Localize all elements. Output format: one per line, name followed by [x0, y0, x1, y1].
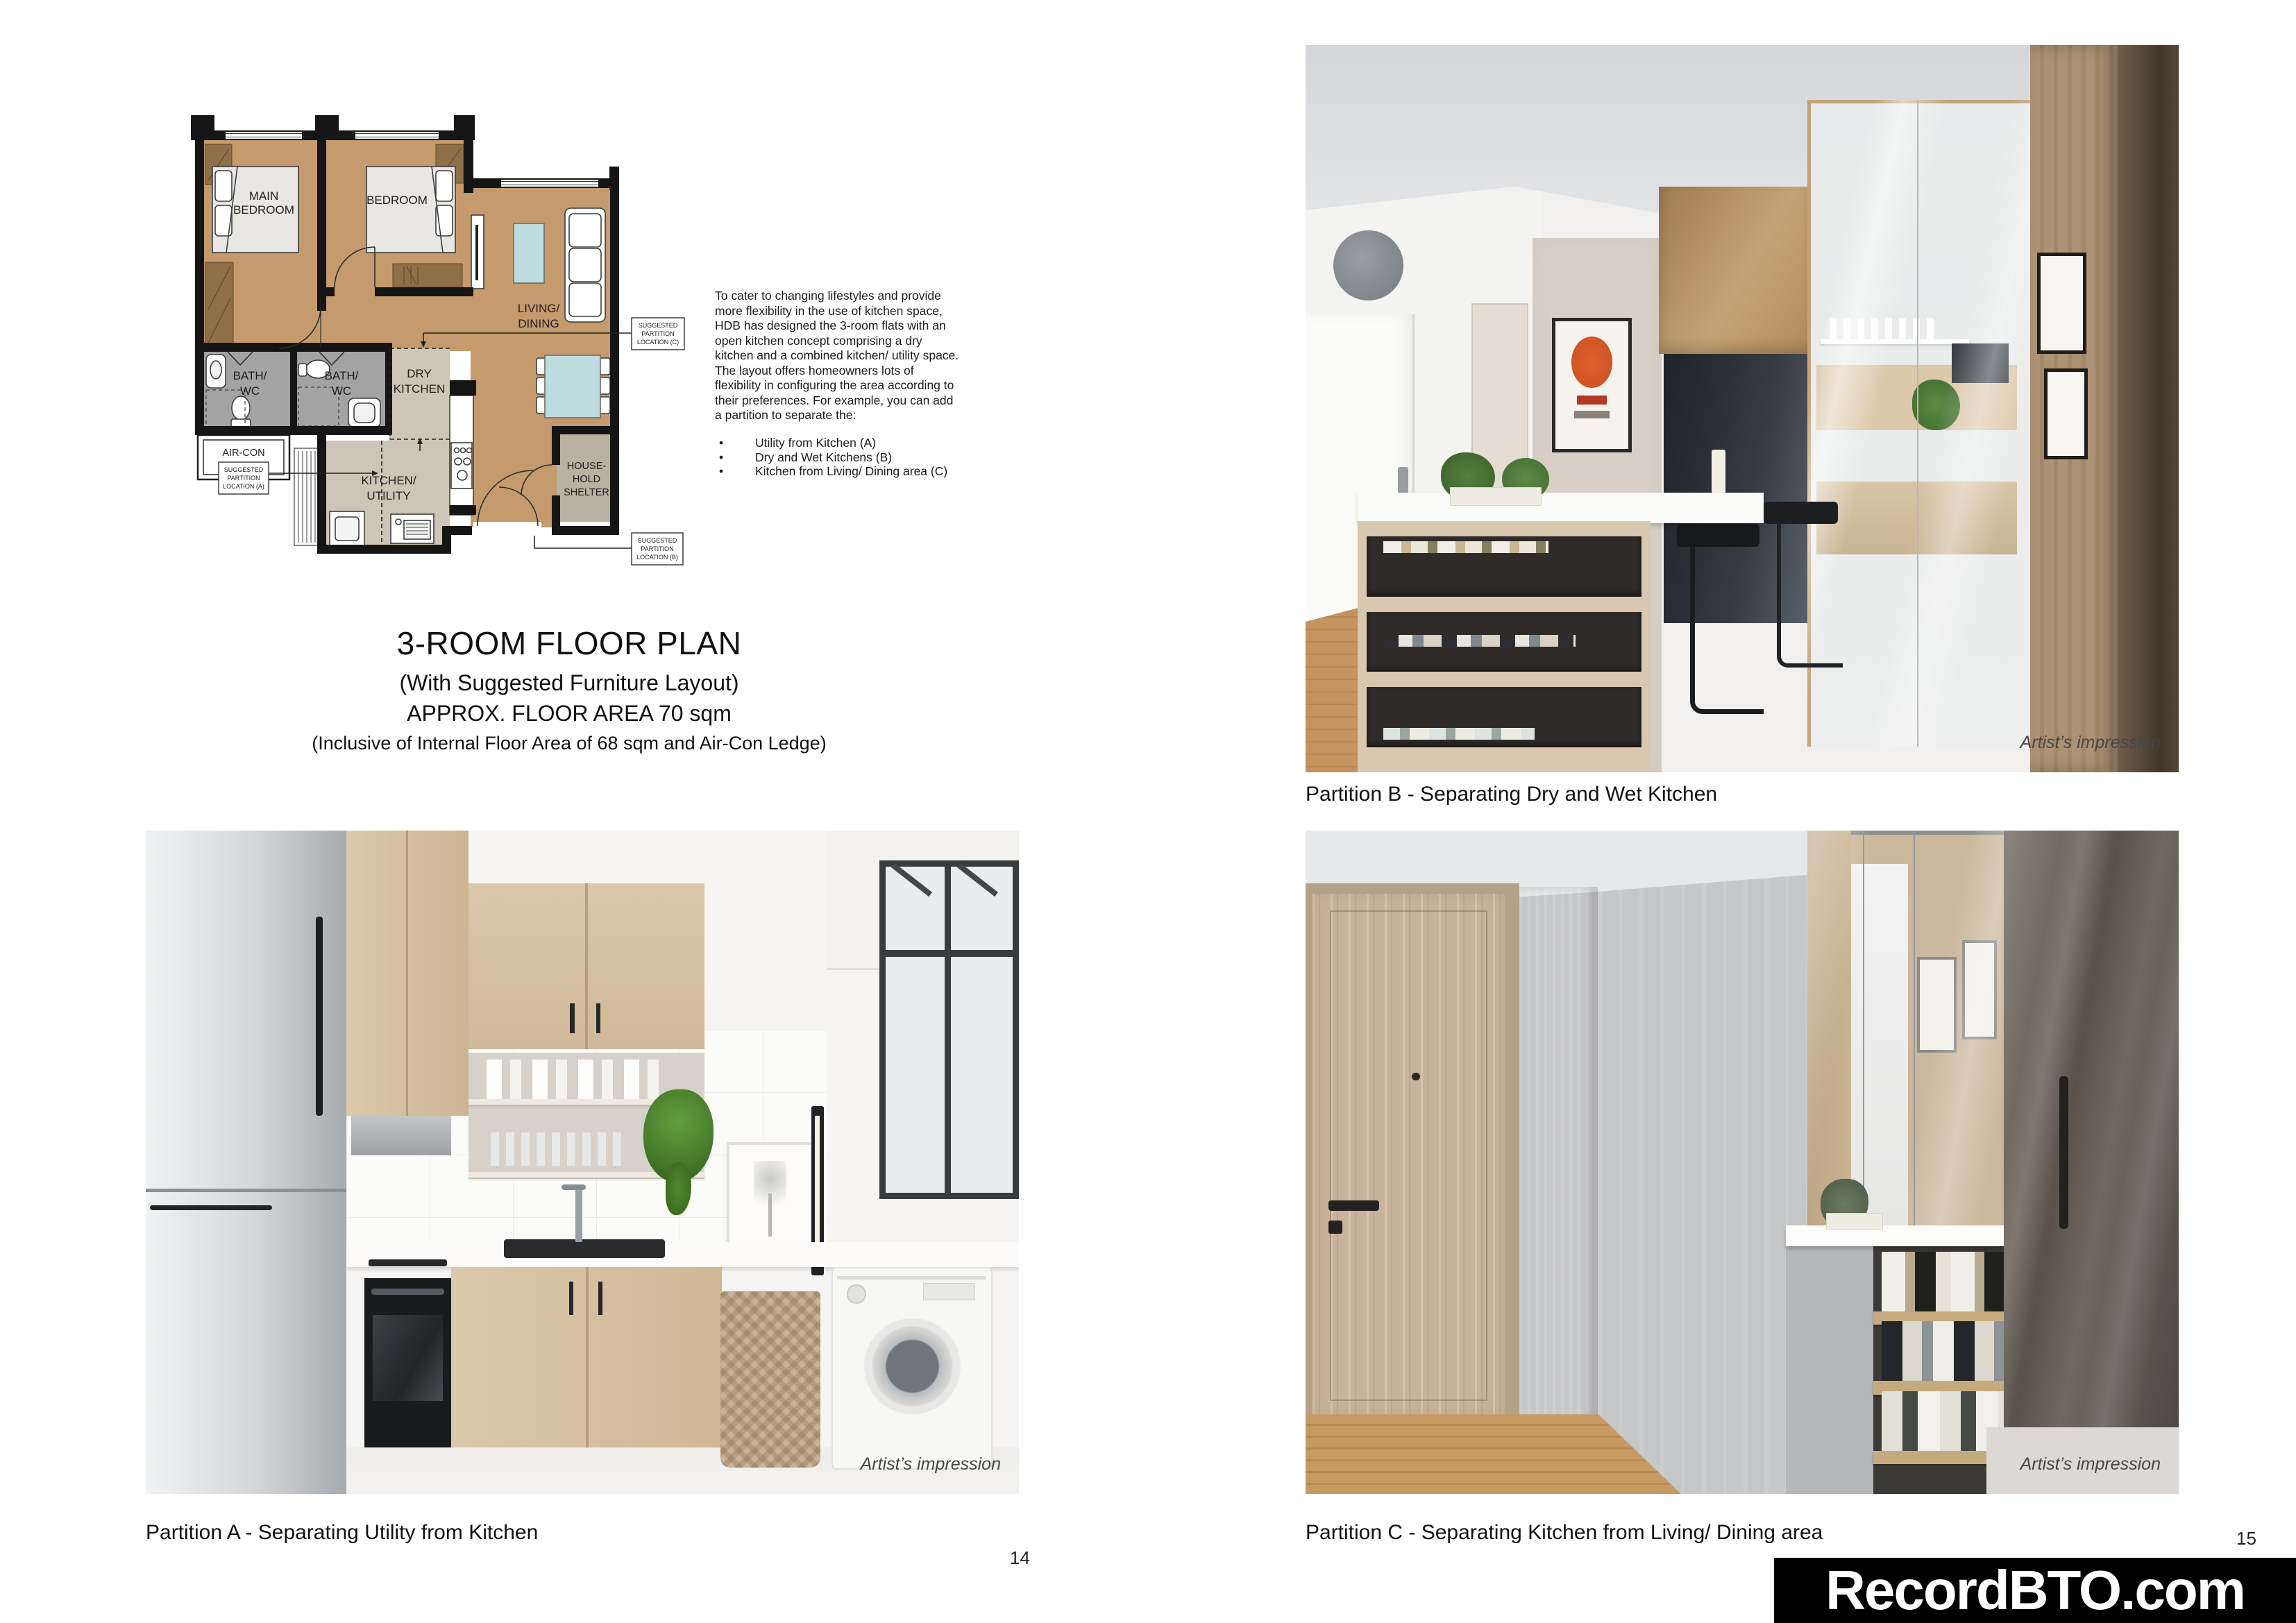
tag-a-l1: SUGGESTED: [224, 466, 264, 473]
cabinet-door-split: [406, 831, 408, 1116]
oven-window: [373, 1315, 443, 1401]
washer-knob: [847, 1284, 866, 1304]
label-bath2-l1: BATH/: [325, 369, 359, 382]
bullet-dry-wet: Dry and Wet Kitchens (B): [715, 450, 979, 465]
magazines: [1882, 1252, 2008, 1311]
overhead-cabinet: [1659, 187, 1812, 354]
magazines: [1882, 1321, 2008, 1381]
lamp-light-strip: [815, 1116, 820, 1261]
art-text-line: [1574, 411, 1610, 418]
kitchen-sink: [504, 1239, 666, 1258]
label-living-l1: LIVING/: [518, 302, 560, 315]
tag-a-l2: PARTITION: [227, 475, 260, 482]
planter-box: [1826, 1213, 1883, 1230]
intro-paragraph: To cater to changing lifestyles and prov…: [715, 289, 962, 423]
cabinet-door-split: [586, 1267, 589, 1466]
shelf-slot: [1367, 536, 1641, 597]
island-countertop: [1358, 493, 1764, 523]
wall-clock: [1333, 230, 1403, 300]
shelf-slot: [1367, 612, 1641, 672]
title-subtitle-1: (With Suggested Furniture Layout): [222, 670, 916, 696]
title-block: 3-ROOM FLOOR PLAN (With Suggested Furnit…: [222, 624, 916, 754]
photo-partition-c: Artist’s impression: [1306, 831, 2179, 1494]
intro-bullet-list: Utility from Kitchen (A) Dry and Wet Kit…: [715, 436, 979, 479]
wall-art-frame: [1552, 318, 1632, 452]
title-subtitle-3: (Inclusive of Internal Floor Area of 68 …: [222, 733, 916, 754]
label-dry-kitchen-l2: KITCHEN: [394, 382, 446, 396]
caption-partition-b: Partition B - Separating Dry and Wet Kit…: [1306, 783, 1717, 806]
cabinet-handle: [596, 1003, 600, 1033]
watermark-text: RecordBTO.com: [1825, 1558, 2245, 1622]
label-shelter-l1: HOUSE-: [567, 461, 607, 472]
books: [1383, 541, 1548, 553]
cabinet-handle: [569, 1282, 573, 1315]
cabinet-handle: [598, 1282, 602, 1315]
bullet-utility: Utility from Kitchen (A): [715, 436, 979, 450]
faucet: [575, 1185, 582, 1241]
watermark-banner: RecordBTO.com: [1774, 1558, 2296, 1623]
grey-wall: [1598, 831, 1807, 1494]
shelf-slot: [1367, 687, 1641, 747]
label-living-l2: DINING: [518, 317, 559, 330]
planter-box: [1450, 487, 1542, 506]
bar-stool: [1764, 502, 1838, 523]
tag-b-l1: SUGGESTED: [638, 537, 677, 544]
refrigerator-handle: [150, 1205, 272, 1210]
window-transom: [879, 950, 1019, 957]
page-number-left: 14: [1010, 1547, 1030, 1569]
art-sun-motif: [1571, 337, 1612, 388]
bar-stool-legs: [1777, 522, 1842, 668]
refrigerator-door-split: [146, 1189, 346, 1192]
island-front-panel: [1786, 1246, 1873, 1495]
label-main-bedroom-l2: BEDROOM: [233, 203, 294, 216]
label-bath1-l2: WC: [240, 384, 260, 398]
cabinet-door-split: [585, 883, 588, 1049]
label-aircon-l1: AIR-CON: [222, 448, 264, 459]
dark-wood-panel: [2118, 45, 2179, 772]
glass-door-handle: [2059, 1076, 2069, 1229]
framed-picture: [2037, 253, 2086, 355]
shelf-jars: [487, 1060, 661, 1099]
countertop: [346, 1242, 1019, 1267]
caption-partition-c: Partition C - Separating Kitchen from Li…: [1306, 1521, 1823, 1545]
tag-b-l2: PARTITION: [641, 545, 673, 552]
caption-partition-a: Partition A - Separating Utility from Ki…: [146, 1521, 538, 1545]
artist-impression-credit: Artist’s impression: [2020, 733, 2161, 753]
window-mullion: [945, 860, 951, 1199]
label-dry-kitchen-l1: DRY: [407, 367, 432, 380]
artist-impression-credit: Artist’s impression: [861, 1454, 1001, 1475]
books: [1383, 728, 1535, 740]
tag-b-l3: LOCATION (B): [636, 554, 678, 561]
label-shelter-l3: SHELTER: [564, 487, 609, 498]
bar-stool: [1677, 524, 1760, 547]
label-bath1-l1: BATH/: [233, 369, 267, 382]
page-number-right: 15: [2236, 1528, 2256, 1549]
refrigerator-handle: [316, 917, 323, 1116]
page-title: 3-ROOM FLOOR PLAN: [222, 624, 916, 662]
leaning-artwork: [727, 1142, 814, 1255]
range-hood: [351, 1116, 452, 1155]
wood-side-panel: [1519, 887, 1598, 1457]
label-kitchen-l1: KITCHEN/: [361, 474, 416, 487]
door-handle: [1328, 1200, 1379, 1210]
photo-partition-a: Artist’s impression: [146, 831, 1019, 1494]
laundry-basket: [720, 1291, 821, 1467]
tree-trunk: [768, 1193, 772, 1237]
bar-stool-legs: [1690, 547, 1764, 714]
glass-reflection: [2004, 831, 2179, 1494]
shelf-glasses: [491, 1132, 622, 1166]
tag-a-l3: LOCATION (A): [223, 483, 264, 490]
candle: [1712, 450, 1725, 493]
cabinet-handle: [570, 1003, 574, 1033]
art-text-line: [1577, 396, 1606, 405]
framed-picture: [2044, 368, 2088, 459]
books: [1383, 635, 1576, 647]
artist-impression-credit: Artist’s impression: [2020, 1454, 2161, 1475]
bullet-kitchen-living: Kitchen from Living/ Dining area (C): [715, 464, 979, 479]
faucet-spout: [562, 1184, 586, 1191]
label-shelter-l2: HOLD: [573, 474, 600, 485]
door-lock: [1328, 1221, 1342, 1234]
door-peephole: [1412, 1073, 1419, 1080]
tag-c-l1: SUGGESTED: [639, 322, 678, 329]
washer-drawer: [923, 1283, 975, 1300]
glass-seam: [1914, 831, 1915, 1248]
tag-c-l2: PARTITION: [641, 330, 674, 337]
glass-seam: [1917, 100, 1918, 747]
tag-c-l3: LOCATION (C): [637, 339, 679, 346]
washer-panel-line: [837, 1276, 986, 1280]
floor-plan: MAIN BEDROOM BEDROOM LIVING/ DINING BATH…: [160, 90, 708, 604]
label-bedroom: BEDROOM: [366, 194, 428, 207]
title-subtitle-2: APPROX. FLOOR AREA 70 sqm: [222, 701, 916, 726]
oven-handle: [371, 1289, 445, 1295]
island-countertop: [1786, 1225, 2022, 1247]
label-bath2-l2: WC: [332, 384, 351, 398]
door-panel-recess: [1330, 910, 1487, 1401]
cooktop: [369, 1259, 447, 1267]
island-bookshelf: [1358, 521, 1650, 772]
brochure-page-spread: MAIN BEDROOM BEDROOM LIVING/ DINING BATH…: [0, 0, 2296, 1623]
label-kitchen-l2: UTILITY: [366, 489, 410, 502]
photo-partition-b: Artist’s impression: [1306, 45, 2179, 772]
washer-door: [864, 1318, 960, 1415]
label-main-bedroom-l1: MAIN: [249, 189, 279, 203]
